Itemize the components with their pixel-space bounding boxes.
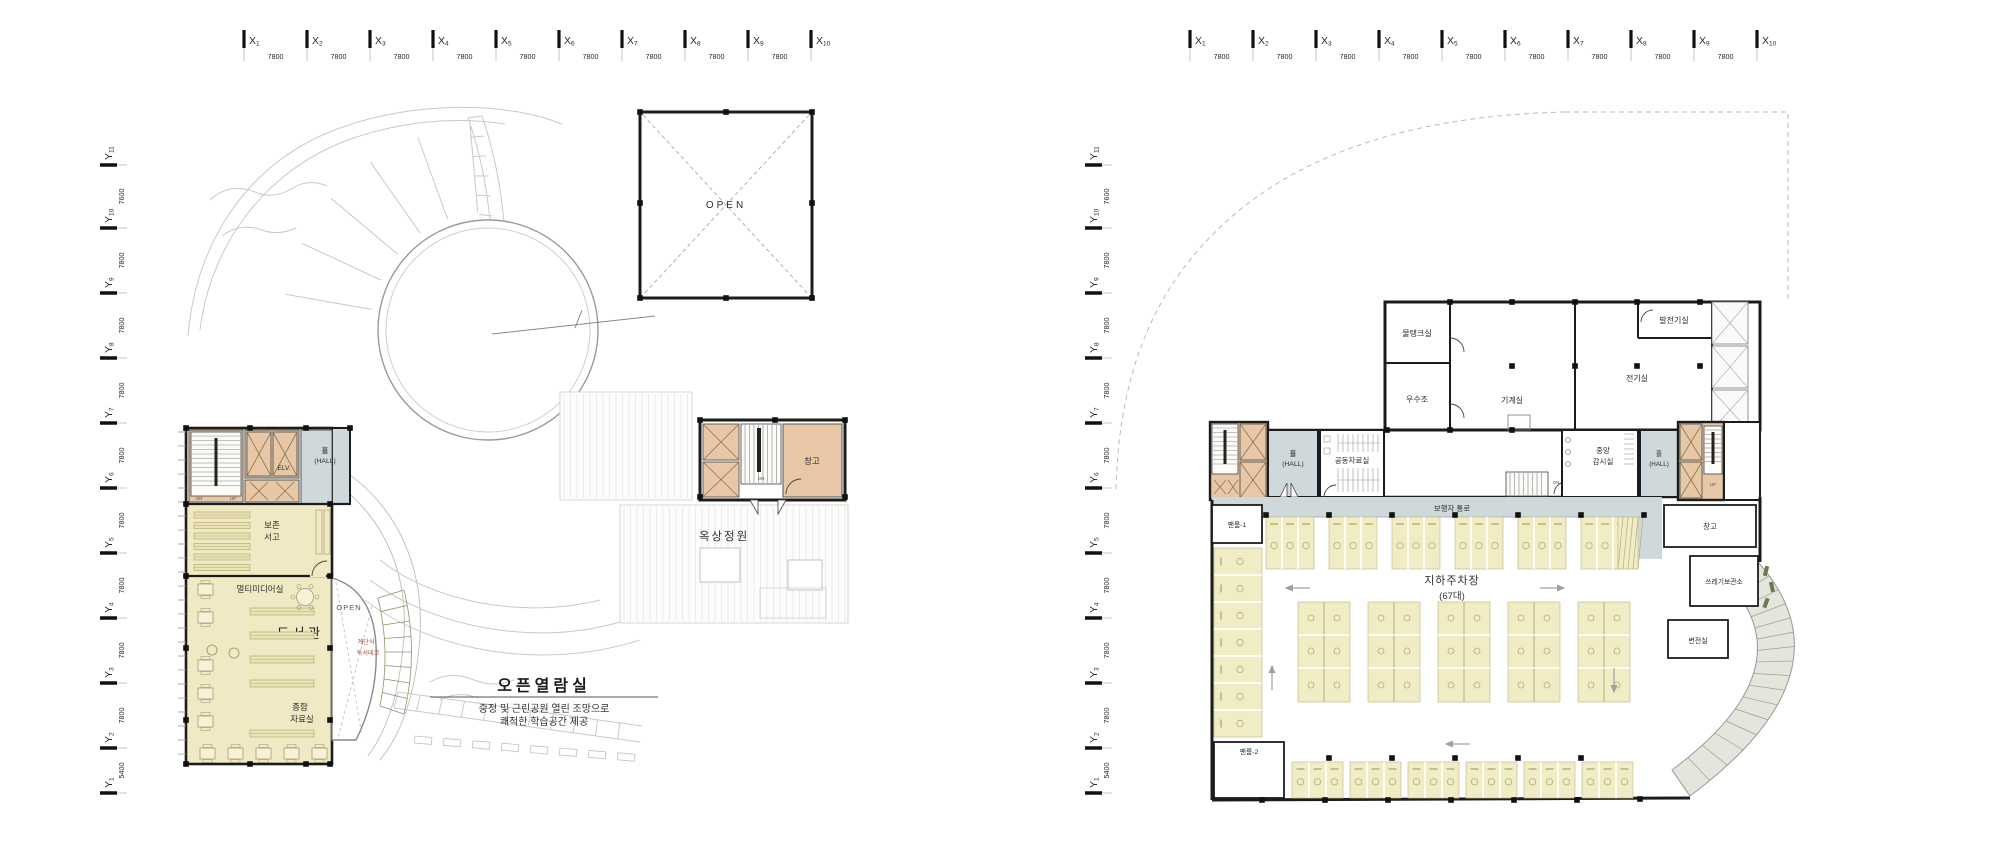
floor-plans-sheet: X17800X27800X37800X47800X57800X67800X778… (0, 0, 2000, 846)
svg-text:X4: X4 (1384, 35, 1395, 48)
corridor-label: 보행자 통로 (1434, 503, 1471, 513)
svg-text:7800: 7800 (1277, 52, 1293, 61)
svg-text:X3: X3 (375, 35, 386, 48)
svg-text:7800: 7800 (583, 52, 599, 61)
svg-text:7800: 7800 (709, 52, 725, 61)
bay-stair-on-label: ON (1553, 480, 1560, 485)
svg-text:Y2: Y2 (103, 732, 116, 743)
open-void-and-deck: OPEN 계단식 독서데크 (332, 578, 412, 740)
roof-garden-label: 옥상정원 (699, 529, 749, 543)
svg-text:7800: 7800 (117, 578, 126, 594)
basement-parking-plan: 물탱크실 우수조 기계실 발전기실 전기실 홀 (HALL) 공동자료실 O (1116, 112, 1794, 803)
svg-text:7800: 7800 (457, 52, 473, 61)
rcore-up-label: UP (1710, 482, 1716, 487)
svg-text:Y11: Y11 (103, 146, 116, 160)
parking-hall: 팬룸-1 팬룸-2 창고 쓰레기보관소 변전실 지하주차장 (67대) ♿ (1212, 497, 1794, 800)
callout-desc2: 쾌적한 학습공간 제공 (500, 716, 588, 728)
svg-text:Y11: Y11 (1088, 146, 1101, 160)
svg-text:Y1: Y1 (1088, 777, 1101, 788)
svg-text:7800: 7800 (1102, 253, 1111, 269)
electric-room-label: 전기실 (1626, 373, 1648, 383)
svg-text:Y3: Y3 (103, 667, 116, 678)
fan-room-2-label: 팬룸-2 (1240, 747, 1259, 756)
svg-text:7800: 7800 (117, 643, 126, 659)
reference-label-line2: 자료실 (290, 714, 313, 724)
svg-text:Y10: Y10 (103, 208, 116, 223)
svg-text:Y6: Y6 (1088, 472, 1101, 483)
svg-text:7800: 7800 (394, 52, 410, 61)
svg-text:Y2: Y2 (1088, 732, 1101, 743)
svg-text:Y10: Y10 (1088, 208, 1101, 223)
parking-label-line2: (67대) (1439, 591, 1465, 602)
svg-text:X7: X7 (627, 35, 638, 48)
svg-text:Y9: Y9 (1088, 277, 1101, 288)
open-court-label: OPEN (706, 200, 746, 211)
svg-text:Y8: Y8 (103, 342, 116, 353)
svg-text:7800: 7800 (1102, 513, 1111, 529)
svg-text:X10: X10 (1762, 35, 1777, 48)
hall-left-label1: 홀 (1290, 448, 1297, 458)
upper-floor-plan: OPEN 옥상정원 창고 DN (178, 107, 848, 766)
svg-text:7800: 7800 (1102, 448, 1111, 464)
svg-text:7800: 7800 (1102, 643, 1111, 659)
hall-left-label2: (HALL) (1282, 461, 1304, 468)
svg-text:7800: 7800 (1102, 708, 1111, 724)
svg-text:X1: X1 (249, 35, 260, 48)
svg-text:X4: X4 (438, 35, 449, 48)
multimedia-label: 멀티미디어실 (237, 584, 284, 594)
svg-text:7800: 7800 (1214, 52, 1230, 61)
svg-text:7800: 7800 (117, 708, 126, 724)
svg-text:Y5: Y5 (103, 537, 116, 548)
svg-text:Y7: Y7 (1088, 407, 1101, 418)
svg-text:7800: 7800 (772, 52, 788, 61)
svg-text:7600: 7600 (117, 189, 126, 205)
svg-text:7800: 7800 (1102, 578, 1111, 594)
stair-dn-label: DN (758, 476, 765, 481)
svg-text:Y5: Y5 (1088, 537, 1101, 548)
svg-text:Y4: Y4 (1088, 602, 1101, 613)
storage-right-label: 창고 (1703, 522, 1717, 531)
open-courtyard: OPEN (640, 112, 812, 298)
water-tank-label: 물탱크실 (1402, 328, 1431, 338)
svg-text:Y8: Y8 (1088, 342, 1101, 353)
svg-text:Y6: Y6 (103, 472, 116, 483)
svg-text:7800: 7800 (117, 318, 126, 334)
svg-text:X9: X9 (753, 35, 764, 48)
svg-text:X8: X8 (690, 35, 701, 48)
hall-label-line1: 홀 (322, 445, 329, 455)
reference-label-line1: 종합 (292, 702, 308, 712)
stepped-deck-label-line1: 계단식 (357, 638, 374, 646)
svg-text:7800: 7800 (1655, 52, 1671, 61)
callout-desc1: 중정 및 근린공원 열린 조망으로 (479, 703, 610, 715)
svg-text:7800: 7800 (268, 52, 284, 61)
storage-label: 창고 (804, 456, 820, 466)
svg-text:Y1: Y1 (103, 777, 116, 788)
svg-text:X3: X3 (1321, 35, 1332, 48)
svg-text:X9: X9 (1699, 35, 1710, 48)
svg-text:7800: 7800 (117, 383, 126, 399)
plans-canvas: X17800X27800X37800X47800X57800X67800X778… (0, 0, 2000, 846)
svg-text:X6: X6 (564, 35, 575, 48)
callout-title: 오픈열람실 (497, 676, 591, 695)
substation-label: 변전실 (1688, 636, 1707, 645)
archive-label-line1: 보존 (264, 520, 280, 530)
rain-tank-label: 우수조 (1406, 395, 1428, 404)
svg-text:7800: 7800 (331, 52, 347, 61)
svg-text:7800: 7800 (1102, 318, 1111, 334)
svg-text:Y9: Y9 (103, 277, 116, 288)
svg-text:7800: 7800 (1340, 52, 1356, 61)
monitor-room-label1: 중앙 (1596, 445, 1610, 455)
svg-text:7800: 7800 (117, 448, 126, 464)
svg-text:X2: X2 (1258, 35, 1269, 48)
service-block-right: 창고 DN (700, 420, 845, 514)
svg-text:7800: 7800 (117, 253, 126, 269)
svg-text:X5: X5 (501, 35, 512, 48)
svg-text:Y3: Y3 (1088, 667, 1101, 678)
svg-text:7800: 7800 (1529, 52, 1545, 61)
svg-text:5400: 5400 (1102, 763, 1111, 779)
svg-text:7600: 7600 (1102, 189, 1111, 205)
svg-text:X5: X5 (1447, 35, 1458, 48)
svg-text:Y4: Y4 (103, 602, 116, 613)
shared-archive-label: 공동자료실 (1335, 455, 1370, 465)
parking-label-line1: 지하주차장 (1424, 573, 1480, 587)
fan-room-1-label: 팬룸-1 (1228, 520, 1247, 529)
svg-text:X1: X1 (1195, 35, 1206, 48)
svg-text:5400: 5400 (117, 763, 126, 779)
svg-text:X10: X10 (816, 35, 831, 48)
machine-room-label: 기계실 (1501, 395, 1523, 405)
stair-up-label: UP (230, 496, 236, 501)
core-band: 홀 (HALL) 공동자료실 ON 중앙 감시실 홀 (HALL) UP (1210, 422, 1760, 500)
generator-room-label: 발전기실 (1659, 315, 1688, 325)
svg-text:7800: 7800 (117, 513, 126, 529)
svg-text:7800: 7800 (646, 52, 662, 61)
svg-text:7800: 7800 (520, 52, 536, 61)
svg-text:X7: X7 (1573, 35, 1584, 48)
stair-on-label: ON (196, 496, 203, 501)
svg-text:X2: X2 (312, 35, 323, 48)
svg-text:Y7: Y7 (103, 407, 116, 418)
monitor-room-label2: 감시실 (1593, 456, 1614, 466)
hall-right-label2: (HALL) (1649, 461, 1669, 468)
archive-label-line2: 서고 (264, 532, 280, 542)
svg-text:X8: X8 (1636, 35, 1647, 48)
svg-text:7800: 7800 (1466, 52, 1482, 61)
elevator-label: ELV. (277, 465, 290, 472)
stepped-deck-label-line2: 독서데크 (357, 649, 380, 657)
trash-room-label: 쓰레기보관소 (1705, 577, 1743, 586)
open-void-label: OPEN (336, 603, 361, 612)
library-wing: 홀 (HALL) ELV. ON UP 보존 서고 멀티미디어실 도서관 종합 … (186, 428, 350, 764)
svg-text:7800: 7800 (1403, 52, 1419, 61)
svg-text:7800: 7800 (1718, 52, 1734, 61)
svg-text:7800: 7800 (1592, 52, 1608, 61)
svg-text:X6: X6 (1510, 35, 1521, 48)
hall-label-line2: (HALL) (314, 458, 336, 465)
svg-text:7800: 7800 (1102, 383, 1111, 399)
hall-right-label1: 홀 (1656, 449, 1663, 458)
